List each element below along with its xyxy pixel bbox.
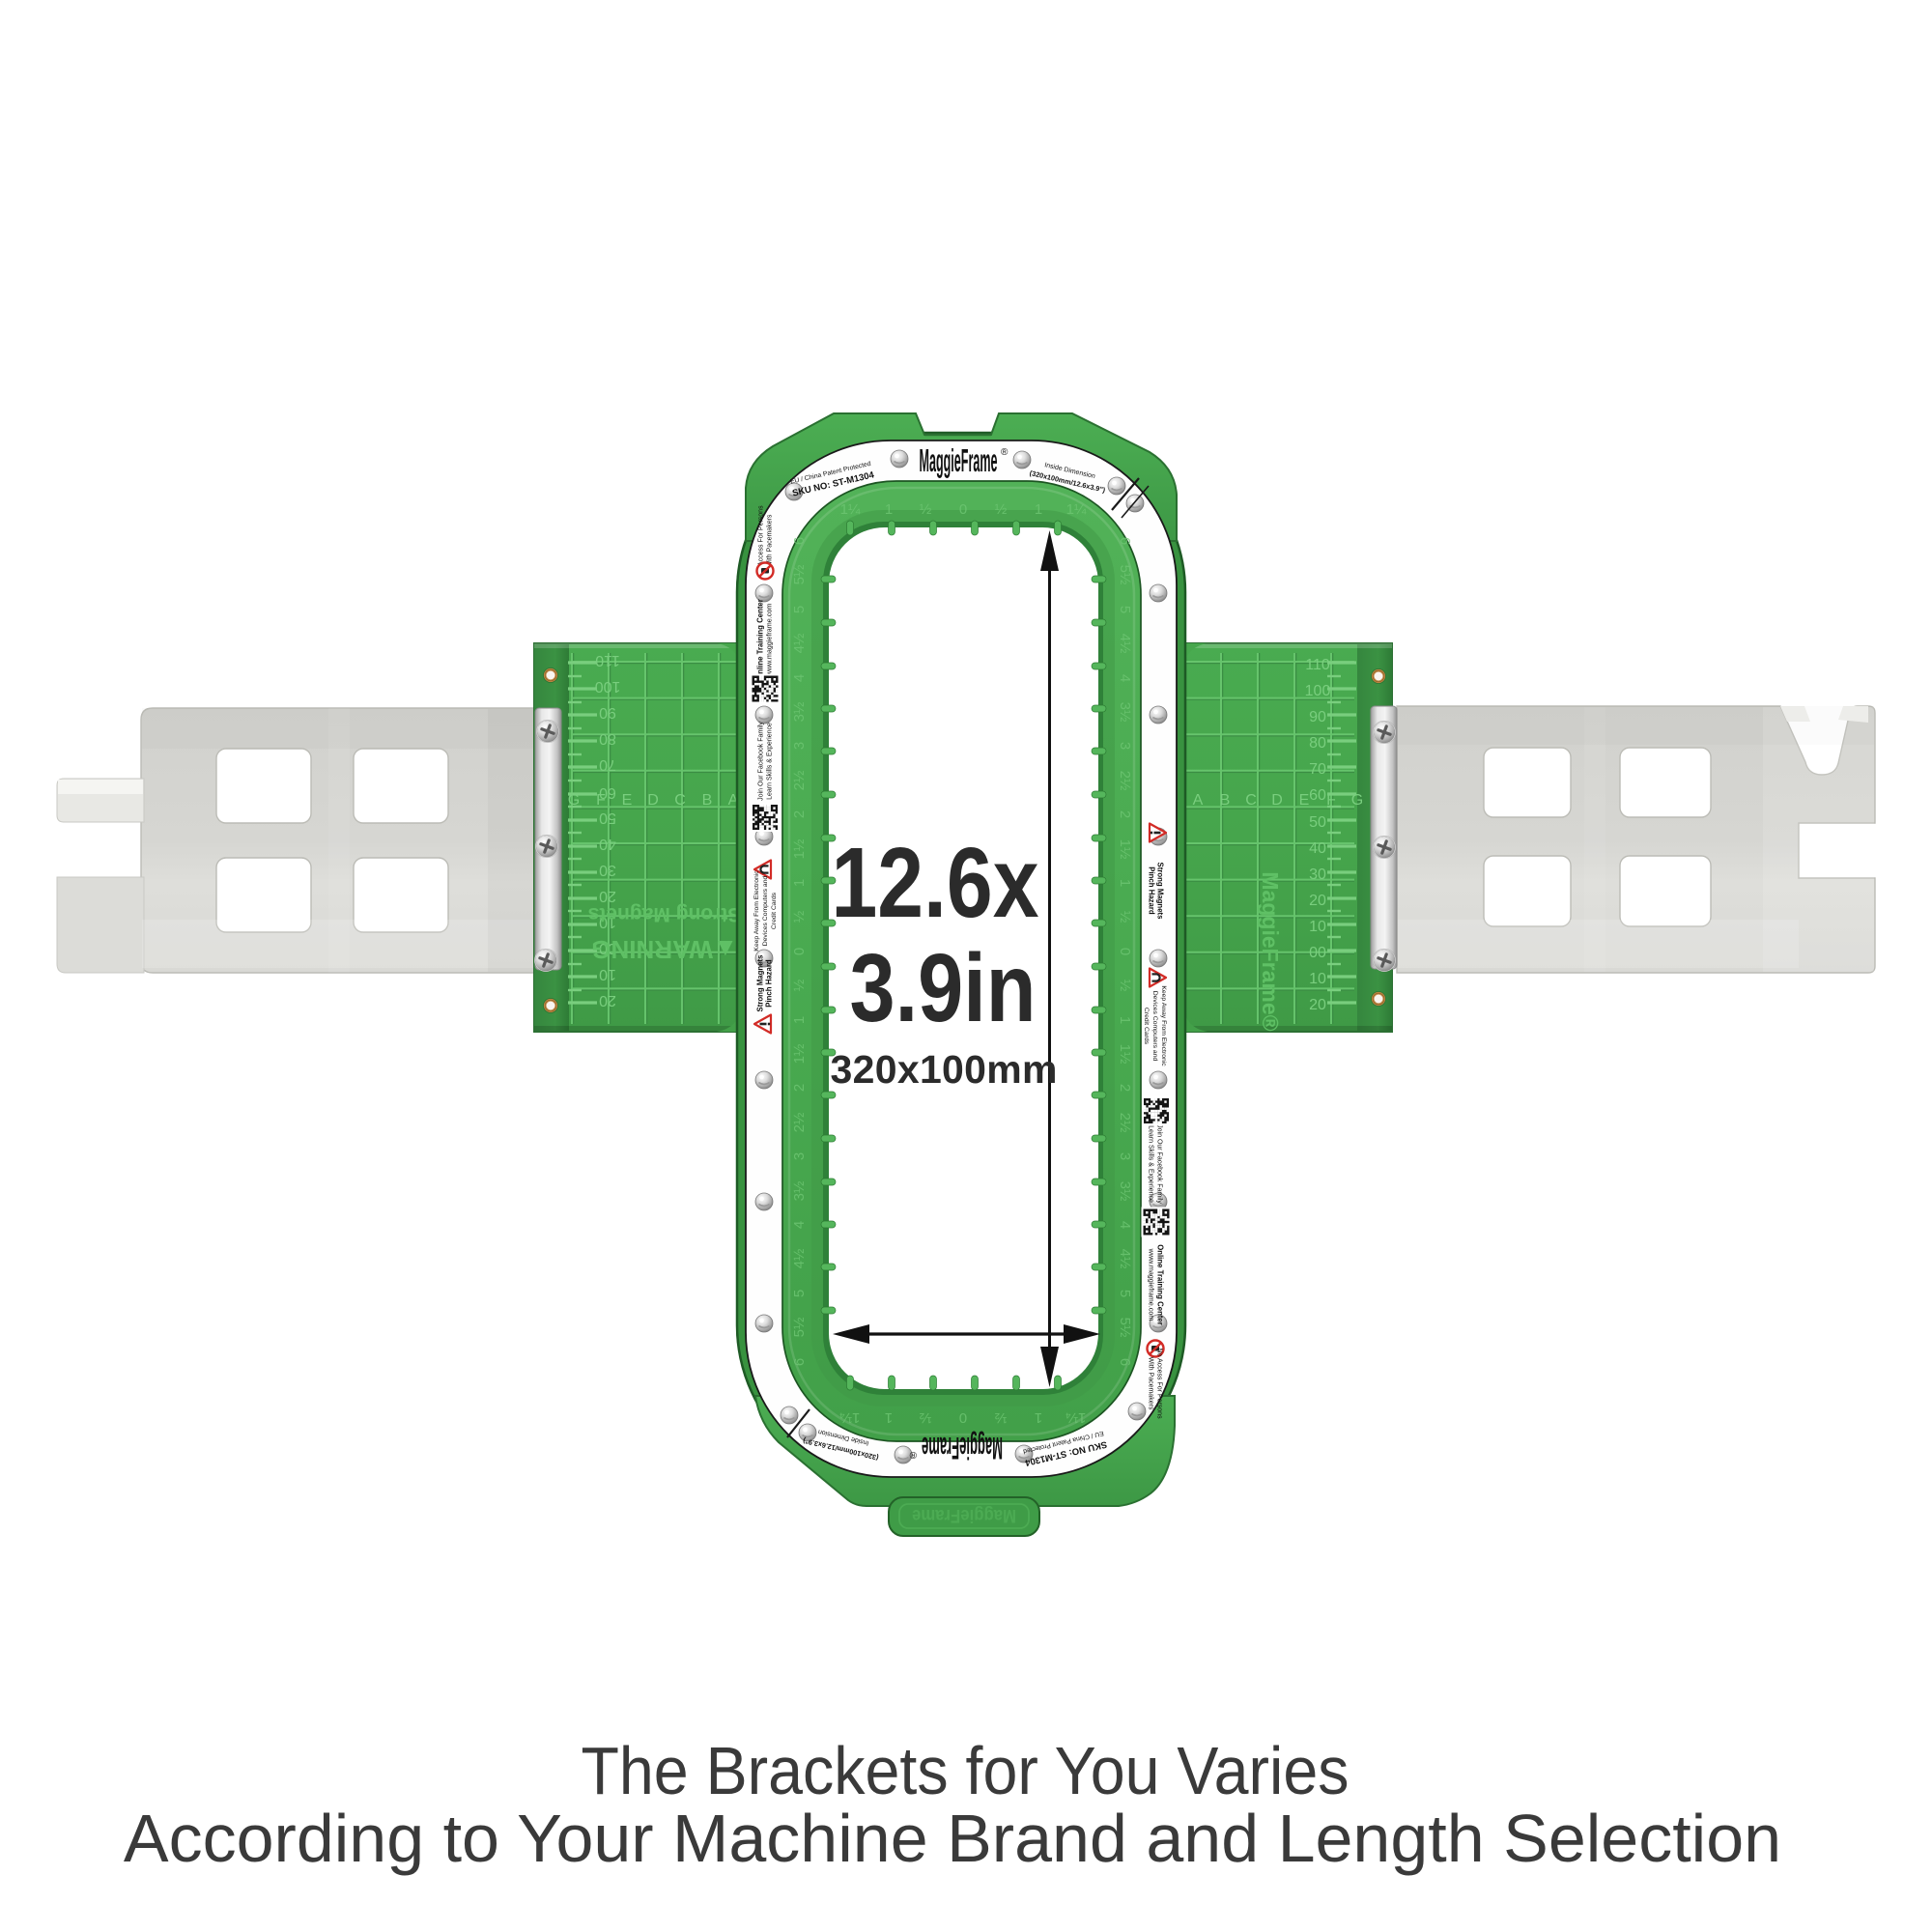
svg-text:½: ½ [1117,980,1133,992]
svg-text:Online Training Center: Online Training Center [755,599,764,680]
svg-text:3½: 3½ [791,701,808,722]
svg-text:F: F [1326,792,1336,809]
svg-text:½: ½ [1117,911,1133,923]
svg-text:10: 10 [599,966,616,982]
svg-text:Devices Computers and: Devices Computers and [762,876,769,947]
svg-text:Credit Cards: Credit Cards [1143,1008,1150,1045]
svg-text:MaggieFrame: MaggieFrame [912,1505,1016,1525]
svg-text:Learn Skills & Experience: Learn Skills & Experience [1148,1125,1154,1203]
svg-text:½: ½ [995,501,1008,518]
svg-text:80: 80 [1309,735,1326,752]
svg-text:½: ½ [919,1409,931,1426]
svg-text:5: 5 [791,606,808,613]
svg-text:2½: 2½ [1117,771,1133,791]
svg-text:30: 30 [1309,867,1326,883]
svg-text:2: 2 [1117,1084,1133,1092]
svg-text:70: 70 [599,756,616,773]
svg-text:Pinch Hazard: Pinch Hazard [764,959,773,1008]
svg-text:4½: 4½ [1117,1249,1133,1269]
svg-text:With Pacemakers: With Pacemakers [766,514,773,567]
svg-text:E: E [1299,792,1310,809]
svg-text:1: 1 [885,1409,893,1426]
svg-text:3: 3 [791,1152,808,1160]
svg-text:10: 10 [1309,971,1326,987]
svg-text:½: ½ [920,501,932,518]
svg-text:70: 70 [1309,761,1326,778]
svg-text:90: 90 [1309,709,1326,725]
svg-text:6: 6 [1117,537,1133,545]
svg-text:6: 6 [791,537,808,545]
svg-text:4½: 4½ [791,633,808,653]
svg-text:D: D [1271,792,1283,809]
svg-text:2: 2 [791,810,808,818]
svg-text:With Pacemakers: With Pacemakers [1148,1357,1154,1410]
svg-text:4: 4 [1117,674,1133,682]
svg-text:A: A [1193,792,1204,809]
svg-text:3.9in: 3.9in [850,934,1037,1042]
svg-text:50: 50 [599,810,616,826]
svg-text:G: G [1351,792,1363,809]
svg-text:100: 100 [1305,683,1331,699]
svg-text:Join Our Facebook Family: Join Our Facebook Family [757,722,764,801]
svg-text:0: 0 [959,501,967,518]
svg-text:MaggieFrame: MaggieFrame [922,1431,1003,1465]
svg-text:5½: 5½ [1117,1318,1133,1338]
svg-text:80: 80 [599,730,616,747]
svg-text:D: D [647,792,659,809]
svg-text:0: 0 [1117,948,1133,955]
svg-text:3½: 3½ [1117,702,1133,723]
svg-text:20: 20 [599,888,616,904]
svg-text:1¼: 1¼ [839,1409,860,1426]
svg-text:20: 20 [1309,893,1326,909]
svg-text:MaggieFrame: MaggieFrame [920,442,998,478]
svg-text:320x100mm: 320x100mm [831,1047,1058,1092]
svg-text:E: E [622,792,633,809]
svg-text:Join Our Facebook Family: Join Our Facebook Family [1156,1124,1163,1204]
svg-text:®: ® [1001,447,1009,458]
svg-text:1½: 1½ [791,838,808,859]
svg-text:5½: 5½ [791,1317,808,1337]
svg-text:▲WARNING: ▲WARNING [591,935,737,964]
svg-text:The Brackets for You Varies: The Brackets for You Varies [582,1733,1350,1808]
svg-text:1: 1 [791,879,808,887]
svg-text:110: 110 [595,652,620,668]
svg-text:3½: 3½ [791,1180,808,1201]
svg-text:6: 6 [1117,1358,1133,1366]
svg-text:1: 1 [1035,501,1042,518]
svg-text:60: 60 [1309,787,1326,804]
svg-text:B: B [1220,792,1231,809]
svg-text:110: 110 [1305,657,1330,673]
svg-text:1: 1 [1035,1409,1042,1426]
svg-text:100: 100 [595,678,621,695]
svg-text:Keep Away From Electronic: Keep Away From Electronic [1160,985,1167,1066]
svg-text:MaggieFrame®: MaggieFrame® [1258,871,1283,1031]
svg-text:B: B [702,792,713,809]
svg-text:C: C [674,792,686,809]
svg-text:5: 5 [1117,606,1133,613]
svg-text:40: 40 [599,836,616,852]
svg-text:6: 6 [791,1358,808,1366]
svg-text:Strong Magnets: Strong Magnets [755,954,764,1012]
svg-text:1: 1 [1117,879,1133,887]
svg-text:www.maggieframe.com: www.maggieframe.com [1148,1248,1156,1321]
svg-text:Keep Away From Electronic: Keep Away From Electronic [753,870,760,952]
svg-text:12.6x: 12.6x [832,827,1039,938]
svg-text:0: 0 [959,1409,967,1426]
svg-text:4: 4 [791,674,808,682]
svg-text:®: ® [909,1449,917,1460]
svg-text:20: 20 [1309,997,1326,1013]
svg-text:3: 3 [791,742,808,750]
svg-text:Online Training Center: Online Training Center [1156,1244,1165,1325]
svg-text:1: 1 [1117,1016,1133,1024]
svg-text:5½: 5½ [791,564,808,584]
svg-text:www.maggieframe.com: www.maggieframe.com [764,604,773,677]
svg-text:1½: 1½ [1117,839,1133,860]
svg-text:1½: 1½ [1117,1044,1133,1065]
svg-text:According to Your Machine Bran: According to Your Machine Brand and Leng… [124,1801,1781,1876]
svg-text:F: F [596,792,606,809]
svg-text:90: 90 [599,704,616,721]
svg-text:40: 40 [1309,840,1326,857]
svg-text:½: ½ [994,1409,1007,1426]
svg-text:1¼: 1¼ [1066,501,1087,518]
svg-text:Credit Cards: Credit Cards [771,892,778,929]
svg-text:3½: 3½ [1117,1181,1133,1202]
svg-text:1½: 1½ [791,1043,808,1064]
svg-text:1: 1 [885,501,893,518]
svg-text:5: 5 [1117,1290,1133,1297]
svg-text:½: ½ [791,910,808,923]
svg-text:Strong Magnets: Strong Magnets [1156,863,1165,921]
svg-text:2: 2 [1117,810,1133,818]
svg-text:1¼: 1¼ [1065,1409,1086,1426]
svg-text:Learn Skills & Experience: Learn Skills & Experience [766,723,773,800]
svg-text:5½: 5½ [1117,565,1133,585]
svg-text:2½: 2½ [791,1112,808,1132]
svg-text:5: 5 [791,1290,808,1297]
svg-text:3: 3 [1117,742,1133,750]
svg-text:4½: 4½ [1117,634,1133,654]
svg-text:Devices Computers and: Devices Computers and [1151,991,1158,1062]
svg-text:4: 4 [791,1221,808,1229]
svg-text:C: C [1245,792,1257,809]
svg-text:20: 20 [599,992,616,1009]
svg-text:00: 00 [1309,945,1326,961]
svg-text:30: 30 [599,862,616,878]
svg-text:Strong Magnets: Strong Magnets [588,903,742,925]
svg-text:4: 4 [1117,1221,1133,1229]
svg-text:1¼: 1¼ [840,501,861,518]
svg-text:0: 0 [791,948,808,955]
svg-text:G: G [568,792,580,809]
svg-text:Pinch Hazard: Pinch Hazard [1148,867,1156,915]
svg-text:2: 2 [791,1084,808,1092]
svg-text:10: 10 [1309,919,1326,935]
svg-text:3: 3 [1117,1152,1133,1160]
svg-text:1: 1 [791,1016,808,1024]
svg-text:2½: 2½ [791,770,808,790]
svg-text:4½: 4½ [791,1248,808,1268]
svg-text:50: 50 [1309,814,1326,831]
svg-text:No Access For Persons: No Access For Persons [1156,1348,1163,1419]
svg-text:½: ½ [791,979,808,991]
svg-text:2½: 2½ [1117,1113,1133,1133]
